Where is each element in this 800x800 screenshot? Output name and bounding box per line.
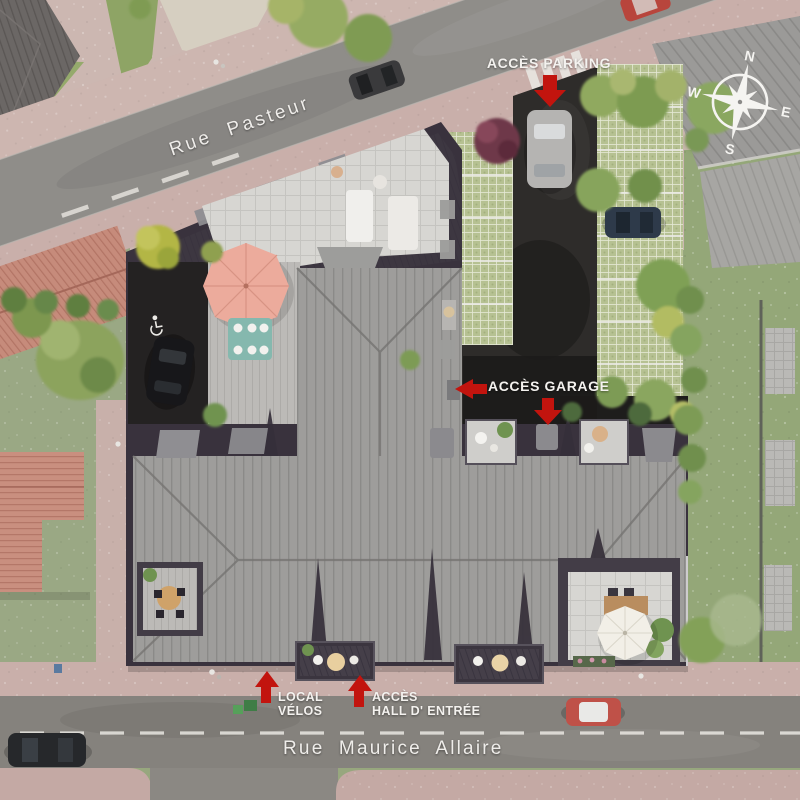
annotation-acces-garage: ACCÈS GARAGE — [488, 379, 610, 394]
southeast-roof-terrace — [558, 558, 680, 667]
dark-car-rue-maurice — [4, 733, 92, 767]
garden-panel — [765, 328, 795, 394]
navy-car-parking — [602, 207, 666, 238]
street-label-rue-maurice-allaire: Rue Maurice Allaire — [283, 739, 478, 759]
annotation-acces-hall-line2: HALL D' ENTRÉE — [372, 705, 480, 719]
annotation-acces-hall: ACCÈS HALL D' ENTRÉE — [372, 691, 480, 718]
annotation-local-velos: LOCAL VÉLOS — [278, 691, 323, 718]
south-balcony-west — [296, 642, 374, 680]
annotation-local-velos-line1: LOCAL — [278, 691, 323, 705]
annotation-acces-parking: ACCÈS PARKING — [449, 56, 649, 71]
blue-bin — [54, 664, 62, 673]
site-plan: N E S W Rue Pasteur Rue Maurice Allaire … — [0, 0, 800, 800]
garden-panel — [764, 565, 792, 631]
annotation-local-velos-line2: VÉLOS — [278, 705, 323, 719]
west-balcony — [137, 562, 203, 636]
courtyard-dining-set — [228, 318, 272, 360]
south-side-street — [150, 768, 338, 800]
garden-panel — [765, 440, 795, 506]
annotation-acces-hall-line1: ACCÈS — [372, 691, 480, 705]
south-balcony-center — [455, 645, 543, 683]
gray-car-parking — [524, 110, 576, 194]
green-bin — [244, 700, 257, 711]
rue-maurice-allaire-street — [0, 662, 800, 800]
site-plan-rendering: N E S W — [0, 0, 800, 800]
green-bin — [233, 705, 243, 714]
red-car-rue-maurice — [561, 698, 625, 726]
